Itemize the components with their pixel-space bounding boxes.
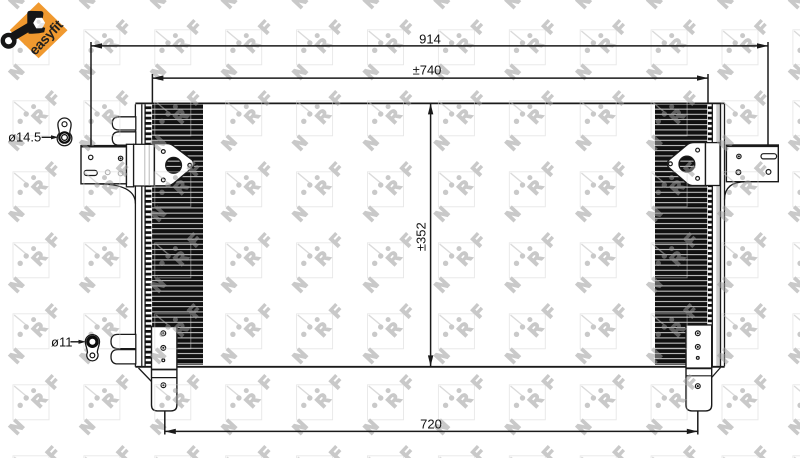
svg-text:±352: ±352	[414, 222, 429, 251]
svg-text:ø11: ø11	[51, 334, 72, 349]
svg-text:720: 720	[420, 416, 442, 431]
svg-text:914: 914	[419, 31, 441, 46]
svg-text:±740: ±740	[413, 62, 442, 77]
svg-text:ø14.5: ø14.5	[8, 130, 41, 145]
